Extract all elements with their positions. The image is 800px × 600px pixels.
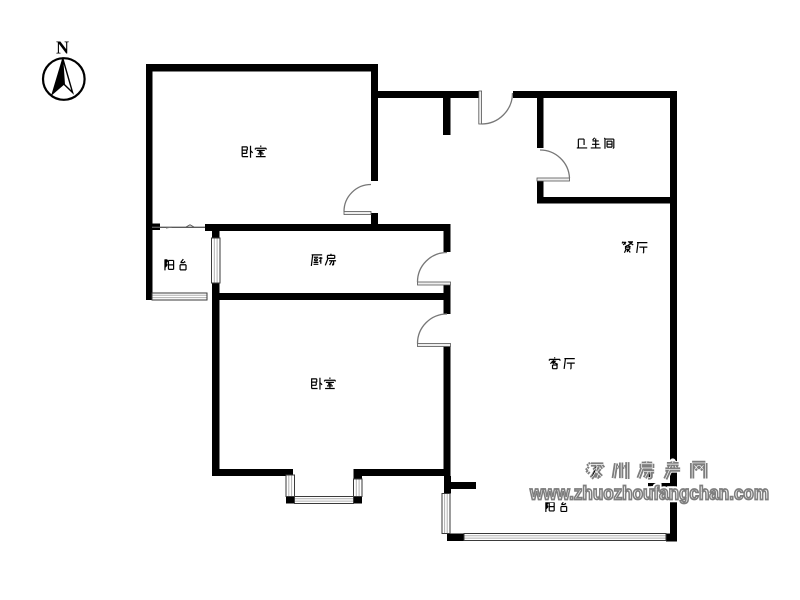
svg-text:N: N	[56, 38, 69, 58]
svg-text:www.zhuozhoufangchan.com: www.zhuozhoufangchan.com	[529, 484, 769, 505]
